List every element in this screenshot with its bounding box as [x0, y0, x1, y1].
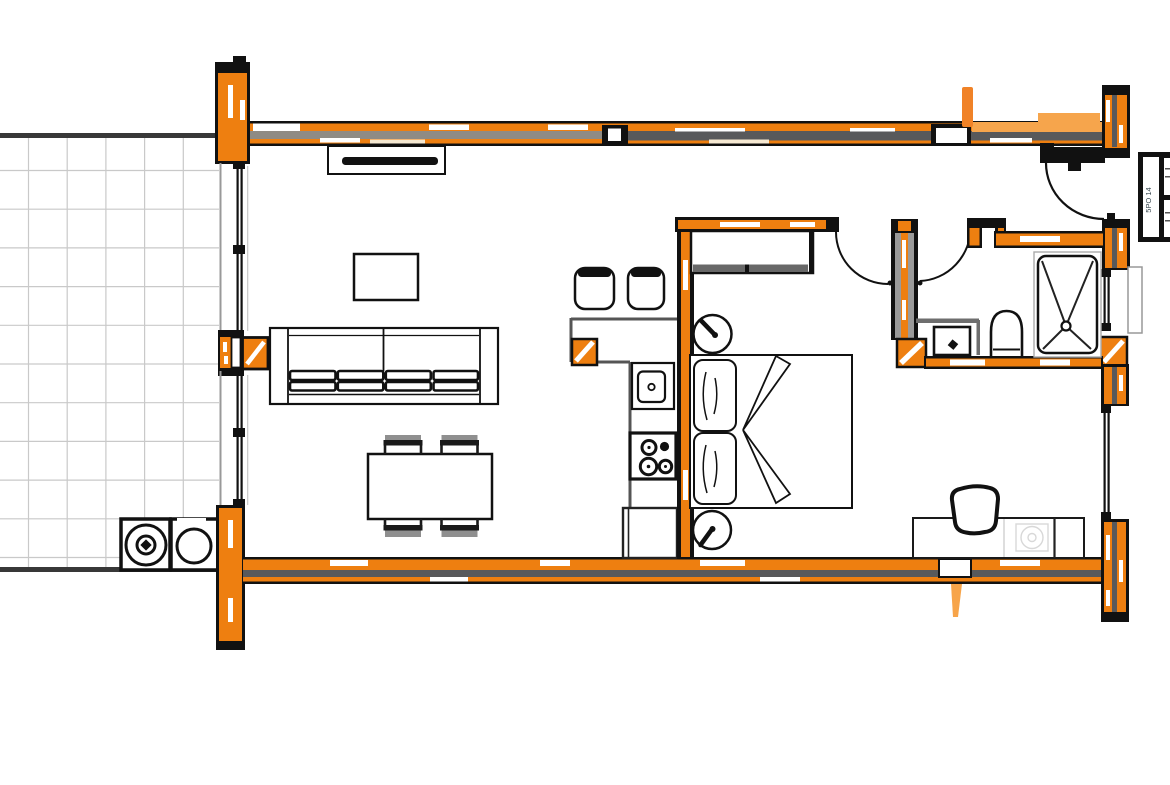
svg-text:5PO 14: 5PO 14 [1144, 187, 1153, 212]
